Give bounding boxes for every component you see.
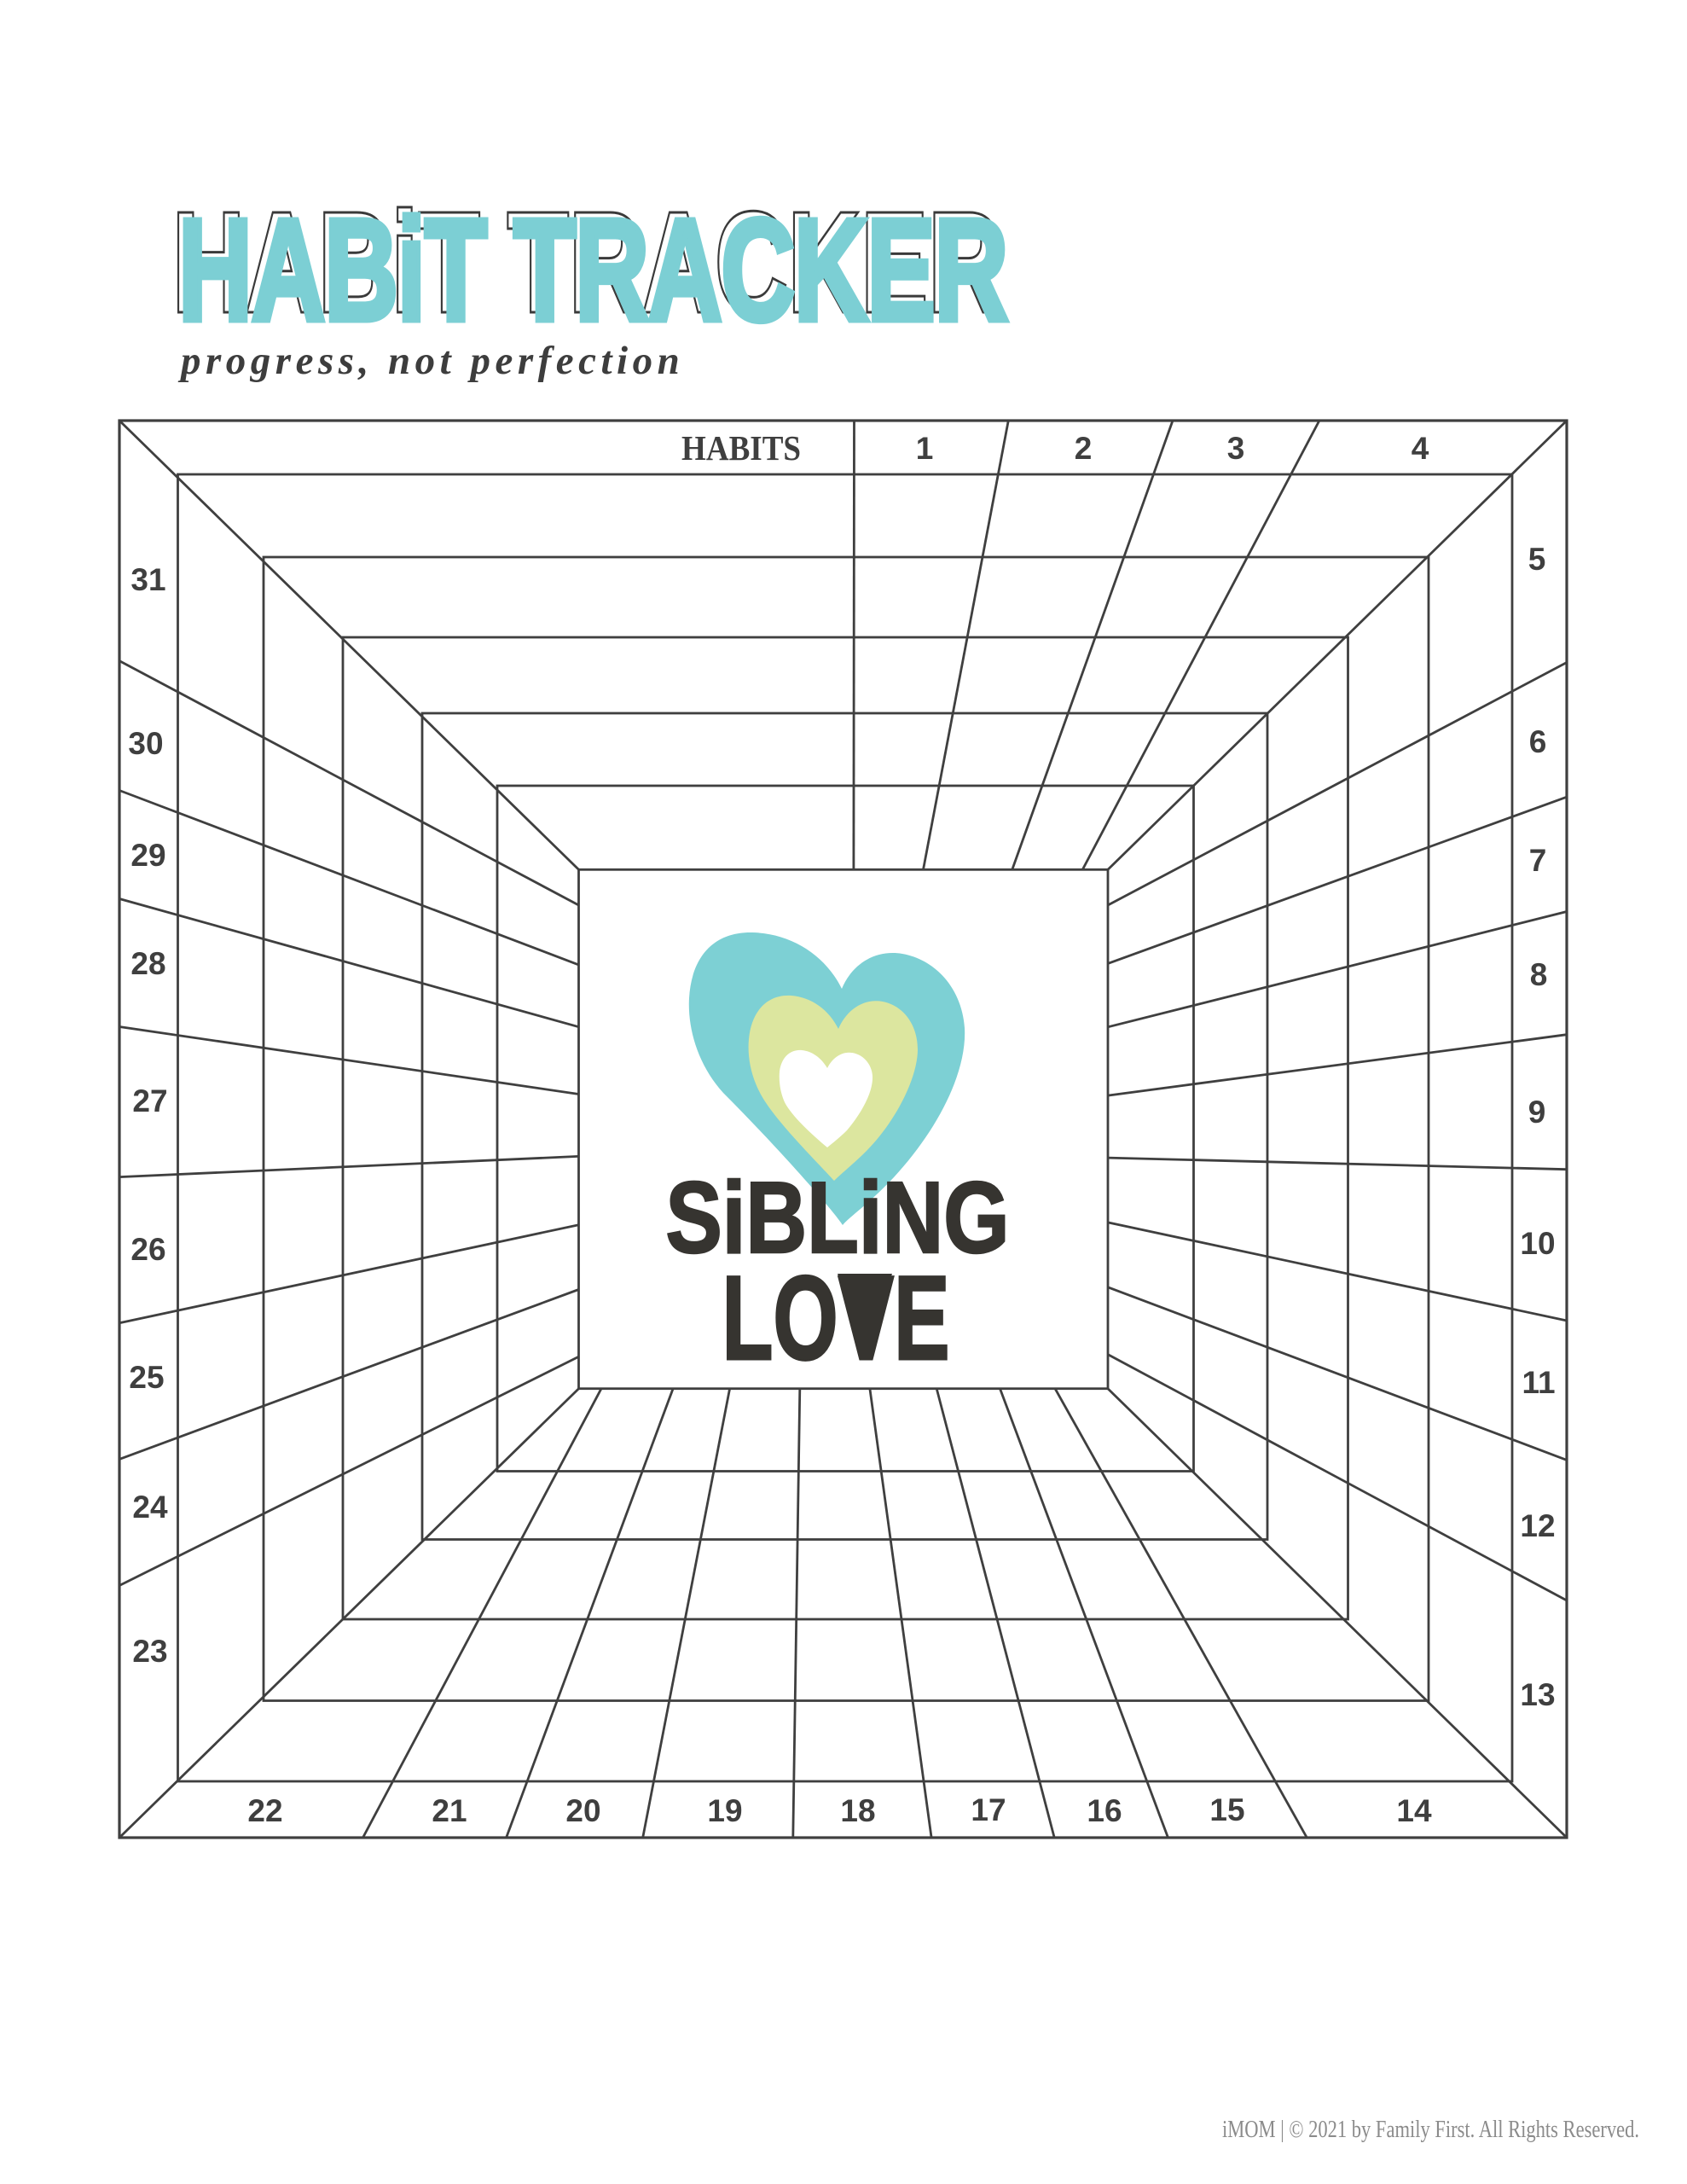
svg-text:18: 18	[840, 1793, 875, 1828]
svg-text:26: 26	[130, 1232, 165, 1267]
svg-text:progress, not perfection: progress, not perfection	[177, 339, 684, 383]
svg-text:4: 4	[1412, 431, 1429, 466]
svg-text:24: 24	[132, 1490, 168, 1525]
svg-text:14: 14	[1396, 1793, 1432, 1828]
svg-text:8: 8	[1530, 957, 1548, 992]
svg-text:17: 17	[971, 1792, 1006, 1827]
svg-text:15: 15	[1209, 1792, 1244, 1827]
svg-text:31: 31	[130, 562, 165, 597]
svg-text:HABiT TRACKER: HABiT TRACKER	[178, 189, 1007, 351]
svg-text:9: 9	[1528, 1095, 1546, 1130]
svg-text:30: 30	[128, 726, 163, 761]
svg-text:5: 5	[1528, 542, 1546, 577]
svg-text:1: 1	[916, 431, 934, 466]
svg-text:12: 12	[1520, 1508, 1555, 1543]
svg-text:27: 27	[132, 1083, 167, 1118]
svg-text:29: 29	[130, 838, 165, 873]
svg-text:HABITS: HABITS	[681, 428, 801, 468]
svg-text:25: 25	[129, 1360, 164, 1395]
svg-text:13: 13	[1520, 1677, 1555, 1712]
svg-text:21: 21	[432, 1793, 467, 1828]
svg-text:3: 3	[1227, 431, 1245, 466]
svg-text:6: 6	[1529, 724, 1547, 759]
svg-text:10: 10	[1520, 1226, 1555, 1261]
svg-text:11: 11	[1522, 1365, 1555, 1400]
svg-text:iMOM | © 2021 by Family First.: iMOM | © 2021 by Family First. All Right…	[1222, 2116, 1639, 2143]
svg-text:2: 2	[1075, 431, 1093, 466]
svg-text:23: 23	[132, 1634, 167, 1669]
svg-text:16: 16	[1087, 1793, 1122, 1828]
svg-text:19: 19	[707, 1793, 742, 1828]
svg-text:20: 20	[565, 1793, 600, 1828]
svg-text:28: 28	[130, 946, 165, 981]
svg-text:LOVE: LOVE	[722, 1251, 950, 1385]
svg-text:22: 22	[247, 1793, 282, 1828]
svg-text:7: 7	[1529, 843, 1547, 878]
